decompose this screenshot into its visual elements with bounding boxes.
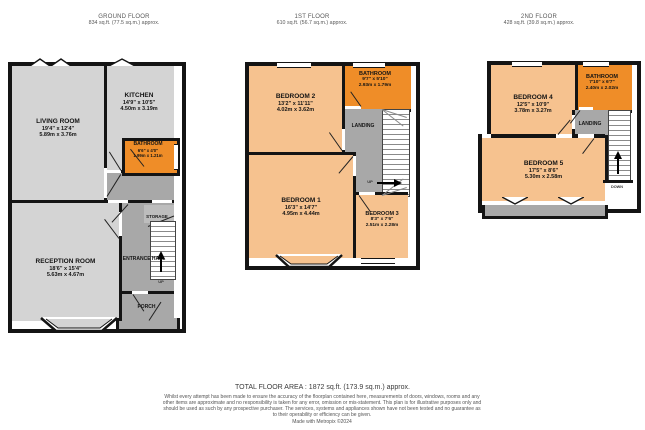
credit-line: Made with Metropix ©2024 xyxy=(162,420,482,426)
door-opening xyxy=(132,291,148,294)
room-name: BEDROOM 1 xyxy=(249,197,353,205)
second-floor-header: 2ND FLOOR 428 sq.ft. (39.8 sq.m.) approx… xyxy=(459,14,619,26)
room-dims-metric: 1.99m x 1.21m xyxy=(122,153,174,158)
ground-floor-header: GROUND FLOOR 834 sq.ft. (77.5 sq.m.) app… xyxy=(44,14,204,26)
room-label-entrance-hall: ENTRANCE HALL xyxy=(114,257,174,263)
room-dims-metric: 5.89m x 3.76m xyxy=(12,132,104,138)
total-floor-area: TOTAL FLOOR AREA : 1872 sq.ft. (173.9 sq… xyxy=(0,384,645,391)
room-label-storage: STORAGE xyxy=(140,214,174,219)
staircase xyxy=(608,110,631,182)
wall xyxy=(12,200,174,203)
room-name: LIVING ROOM xyxy=(12,118,104,126)
room-label-landing: LANDING xyxy=(570,122,610,128)
room-label-bathroom: BATHROOM 9'7" x 5'10" 2.93m x 1.79m xyxy=(342,71,408,89)
room-dims-metric: 4.50m x 3.19m xyxy=(104,106,174,112)
eaves-storage xyxy=(482,205,608,219)
door-opening xyxy=(152,200,172,203)
stairs-direction-label: UP xyxy=(151,279,171,284)
room-label-bedroom-3: BEDROOM 3 8'3" x 7'6" 2.51m x 2.28m xyxy=(356,211,408,229)
disclaimer-text: Whilst every attempt has been made to en… xyxy=(163,394,481,418)
door-opening xyxy=(359,192,375,195)
door-opening xyxy=(345,106,361,109)
first-floor-plan: BEDROOM 2 13'2" x 11'11" 4.02m x 3.62m B… xyxy=(245,62,420,270)
wall xyxy=(249,152,356,155)
floorplan-page: GROUND FLOOR 834 sq.ft. (77.5 sq.m.) app… xyxy=(0,0,645,430)
wall xyxy=(605,135,608,183)
room-label-landing: LANDING xyxy=(339,124,387,130)
door-opening xyxy=(106,170,121,173)
bay-window-chevron xyxy=(502,197,528,205)
room-dims-metric: 2.40m x 2.02m xyxy=(575,86,629,92)
door-opening xyxy=(579,107,593,110)
room-name: BEDROOM 2 xyxy=(249,93,342,101)
room-label-bedroom-1: BEDROOM 1 16'3" x 14'7" 4.95m x 4.44m xyxy=(249,197,353,218)
room-dims-metric: 5.30m x 2.58m xyxy=(482,174,605,180)
stairs-direction-label: DOWN xyxy=(603,185,631,189)
ground-floor-plan: LIVING ROOM 19'4" x 12'4" 5.89m x 3.76m … xyxy=(8,62,186,333)
first-floor-header: 1ST FLOOR 610 sq.ft. (56.7 sq.m.) approx… xyxy=(232,14,392,26)
room-dims-metric: 4.95m x 4.44m xyxy=(249,211,353,217)
room-dims-metric: 3.78m x 3.27m xyxy=(491,108,575,114)
door-opening xyxy=(108,200,128,203)
room-label-bedroom-2: BEDROOM 2 13'2" x 11'11" 4.02m x 3.62m xyxy=(249,93,342,114)
room-label-living: LIVING ROOM 19'4" x 12'4" 5.89m x 3.76m xyxy=(12,118,104,139)
room-name: KITCHEN xyxy=(104,92,174,100)
room-label-porch: PORCH xyxy=(119,305,174,311)
room-dims-metric: 4.02m x 3.62m xyxy=(249,107,342,113)
disclaimer-block: Whilst every attempt has been made to en… xyxy=(162,395,482,425)
window xyxy=(174,144,178,170)
second-floor-plan: BEDROOM 4 12'5" x 10'9" 3.78m x 3.27m BA… xyxy=(478,61,641,213)
floor-area: 610 sq.ft. (56.7 sq.m.) approx. xyxy=(232,20,392,26)
room-name: BEDROOM 5 xyxy=(482,160,605,168)
door-opening xyxy=(353,156,356,176)
bay-window-chevron xyxy=(51,58,71,66)
door-opening xyxy=(342,129,345,150)
room-dims-metric: 2.93m x 1.79m xyxy=(342,83,408,89)
window xyxy=(583,61,609,67)
floor-area: 834 sq.ft. (77.5 sq.m.) approx. xyxy=(44,20,204,26)
room-name: BEDROOM 4 xyxy=(491,94,575,102)
bay-window-chevron xyxy=(30,58,50,66)
floor-area: 428 sq.ft. (39.8 sq.m.) approx. xyxy=(459,20,619,26)
room-label-bathroom: BATHROOM 6'6" x 4'0" 1.99m x 1.21m xyxy=(122,142,174,158)
room-label-kitchen: KITCHEN 14'9" x 10'5" 4.50m x 3.19m xyxy=(104,92,174,113)
bay-window-chevron xyxy=(558,197,584,205)
bay-window xyxy=(273,254,345,271)
room-dims-metric: 2.51m x 2.28m xyxy=(356,223,408,229)
room-label-bathroom: BATHROOM 7'10" x 6'7" 2.40m x 2.02m xyxy=(575,74,629,92)
door-opening xyxy=(119,212,122,236)
room-dims-metric: 5.63m x 4.67m xyxy=(12,272,119,278)
room-label-reception: RECEPTION ROOM 18'6" x 15'4" 5.63m x 4.6… xyxy=(12,258,119,279)
window xyxy=(512,61,542,67)
room-label-bedroom-4: BEDROOM 4 12'5" x 10'9" 3.78m x 3.27m xyxy=(491,94,575,115)
room-name: RECEPTION ROOM xyxy=(12,258,119,266)
window xyxy=(361,258,395,264)
footprint-notch xyxy=(478,61,487,134)
bay-window xyxy=(38,317,120,335)
window xyxy=(277,62,311,68)
stairs-direction-label: UP xyxy=(364,179,376,184)
window xyxy=(353,62,385,68)
bay-window-chevron xyxy=(109,58,135,66)
door-opening xyxy=(578,134,594,138)
room-label-bedroom-5: BEDROOM 5 17'5" x 8'6" 5.30m x 2.58m xyxy=(482,160,605,181)
